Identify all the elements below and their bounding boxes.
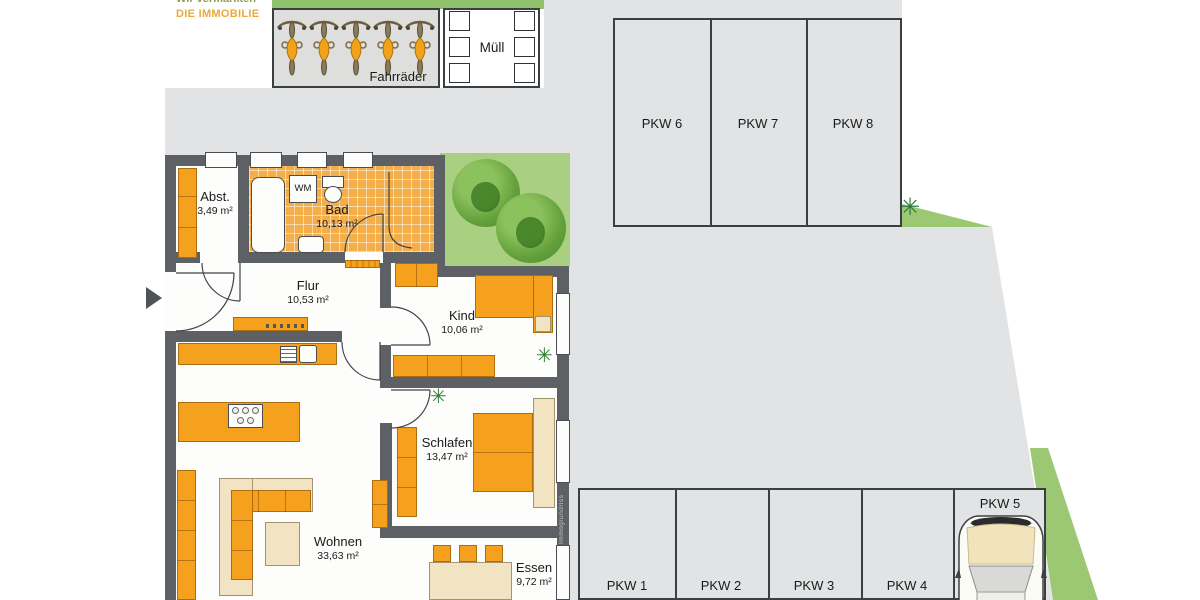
room-label-kind: Kind 10,06 m² [422,309,502,336]
room-label-essen: Essen 9,72 m² [502,561,566,588]
room-label-flur: Flur 10,53 m² [268,279,348,306]
door-swings [0,0,1200,600]
door-arc [176,273,234,331]
floor-plan: Wir vermarkten DIE IMMOBILIE [0,0,1200,600]
door-arc [202,263,240,301]
door-arc [342,342,380,380]
room-label-wohnen: Wohnen 33,63 m² [288,535,388,562]
door-arc [391,390,430,428]
shower-glass [389,172,412,248]
room-label-bad: Bad 10,13 m² [297,203,377,230]
room-label-schlafen: Schlafen 13,47 m² [397,436,497,463]
room-label-abst: Abst. 3,49 m² [180,190,250,217]
